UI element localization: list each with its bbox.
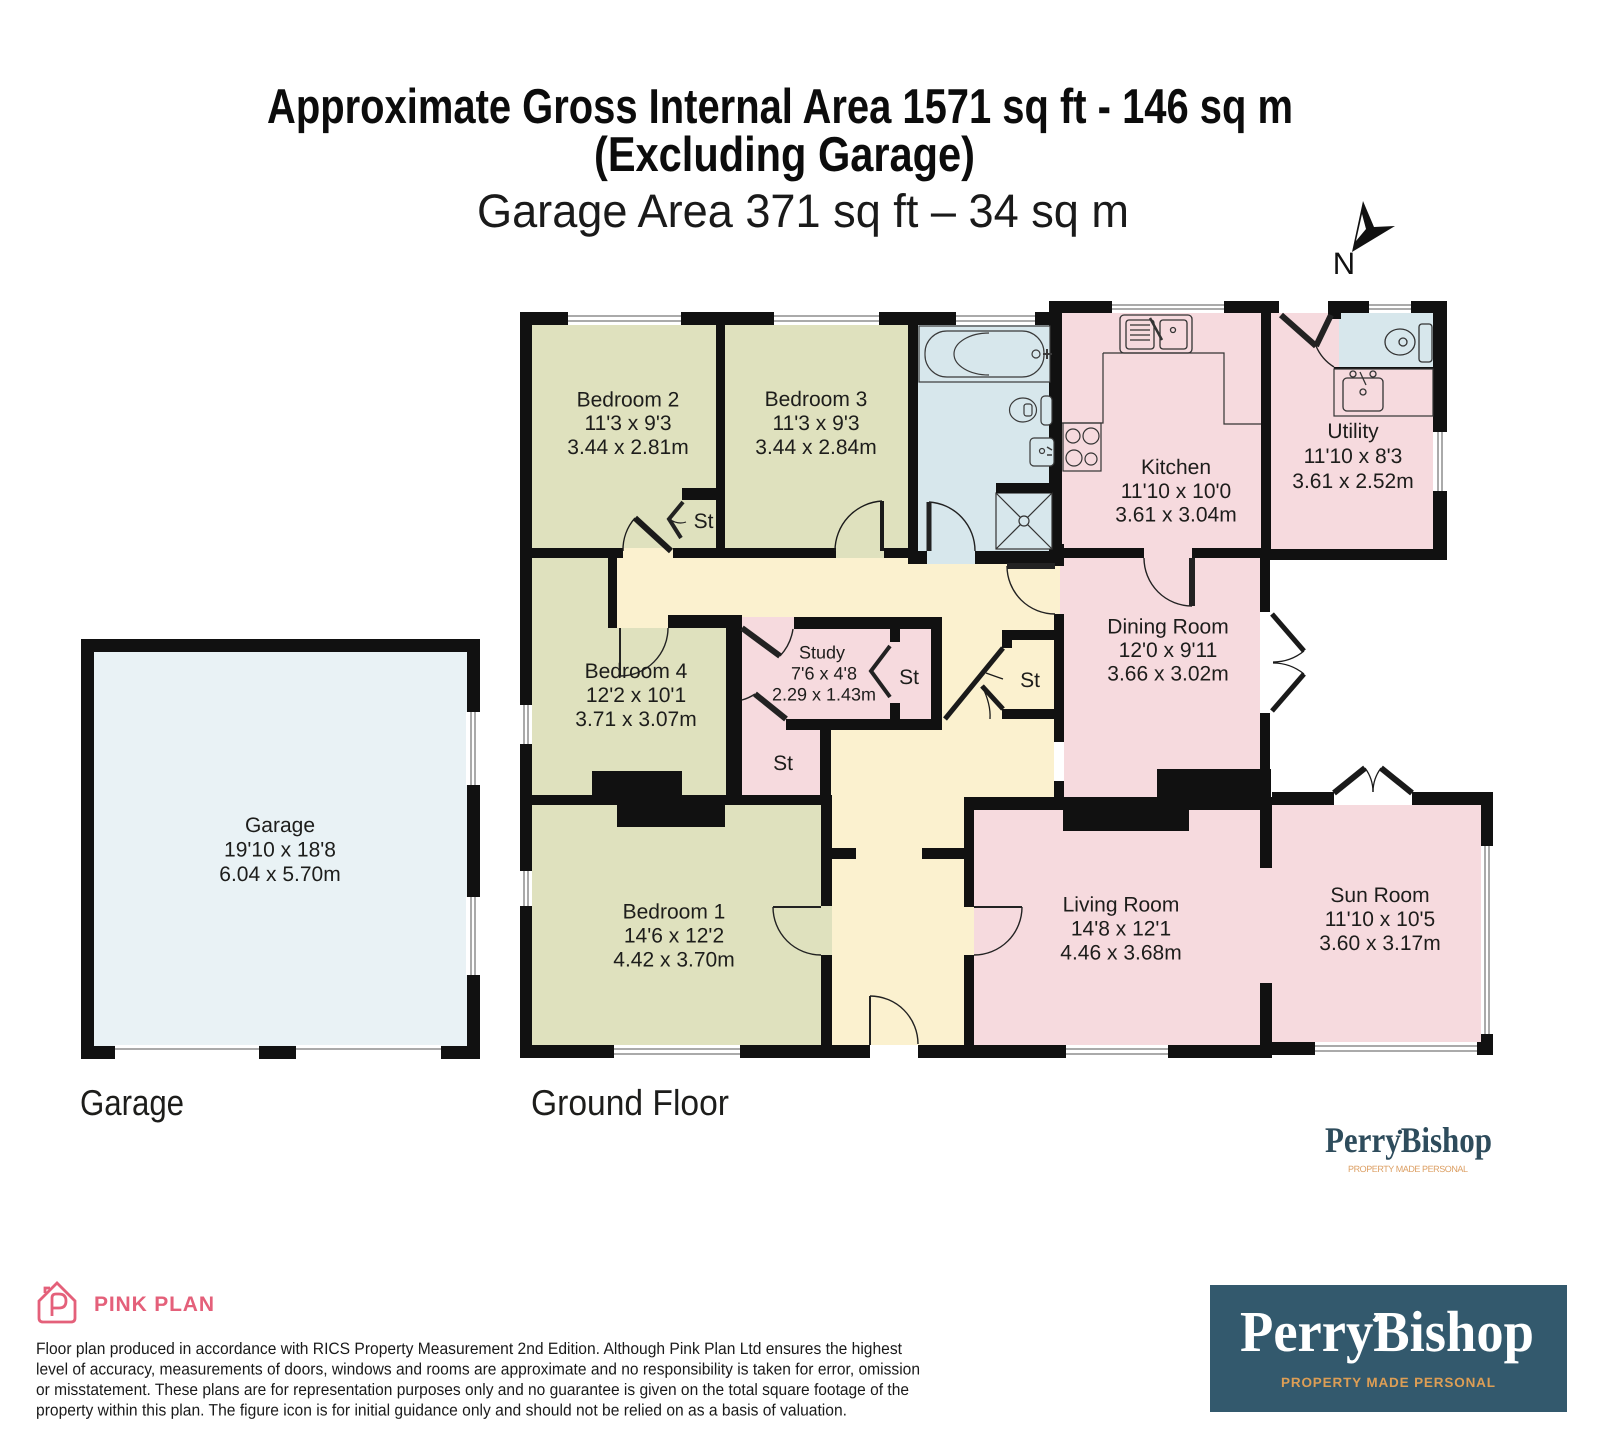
svg-text:Study: Study: [799, 643, 845, 663]
svg-text:12'0 x 9'11: 12'0 x 9'11: [1119, 639, 1218, 662]
svg-text:14'6 x 12'2: 14'6 x 12'2: [624, 925, 724, 948]
svg-text:Bedroom 1: Bedroom 1: [623, 901, 726, 924]
svg-text:Floor plan produced in accorda: Floor plan produced in accordance with R…: [36, 1340, 902, 1358]
svg-text:or misstatement. These plans a: or misstatement. These plans are for rep…: [36, 1381, 909, 1399]
svg-text:12'2 x 10'1: 12'2 x 10'1: [586, 684, 686, 707]
svg-text:Kitchen: Kitchen: [1141, 456, 1211, 479]
svg-text:11'10 x 10'5: 11'10 x 10'5: [1325, 908, 1435, 931]
svg-text:level of accuracy, measurement: level of accuracy, measurements of doors…: [36, 1361, 920, 1379]
svg-text:N: N: [1333, 246, 1355, 281]
svg-text:4.42 x 3.70m: 4.42 x 3.70m: [613, 949, 734, 972]
svg-text:St: St: [899, 666, 919, 689]
svg-text:St: St: [773, 752, 793, 775]
svg-text:Garage: Garage: [245, 814, 315, 837]
svg-text:3.44 x 2.81m: 3.44 x 2.81m: [567, 436, 688, 459]
svg-text:11'10 x 8'3: 11'10 x 8'3: [1304, 445, 1403, 468]
svg-text:4.46 x 3.68m: 4.46 x 3.68m: [1060, 942, 1181, 965]
svg-text:Garage: Garage: [80, 1082, 184, 1123]
svg-text:3.61 x 3.04m: 3.61 x 3.04m: [1115, 504, 1236, 527]
svg-text:PROPERTY MADE PERSONAL: PROPERTY MADE PERSONAL: [1348, 1164, 1468, 1174]
svg-text:14'8 x 12'1: 14'8 x 12'1: [1071, 918, 1171, 941]
svg-text:Ground Floor: Ground Floor: [531, 1082, 729, 1123]
svg-text:3.60 x 3.17m: 3.60 x 3.17m: [1319, 932, 1440, 955]
svg-text:Dining Room: Dining Room: [1107, 616, 1228, 639]
svg-text:Approximate Gross Internal Are: Approximate Gross Internal Area 1571 sq …: [267, 80, 1293, 134]
svg-text:Bedroom 3: Bedroom 3: [765, 388, 868, 411]
svg-text:3.44 x 2.84m: 3.44 x 2.84m: [755, 436, 876, 459]
svg-text:Bedroom 2: Bedroom 2: [577, 389, 680, 412]
svg-text:(Excluding Garage): (Excluding Garage): [594, 128, 975, 182]
svg-text:19'10 x 18'8: 19'10 x 18'8: [224, 839, 336, 862]
svg-text:PerryBishop: PerryBishop: [1240, 1299, 1534, 1364]
svg-text:St: St: [1020, 669, 1040, 692]
svg-text:Utility: Utility: [1327, 420, 1379, 443]
svg-text:PINK PLAN: PINK PLAN: [94, 1293, 214, 1316]
svg-text:11'3 x 9'3: 11'3 x 9'3: [772, 412, 859, 435]
svg-text:property within this plan. The: property within this plan. The figure ic…: [36, 1402, 847, 1420]
svg-text:Bedroom 4: Bedroom 4: [585, 660, 688, 683]
svg-text:11'10 x 10'0: 11'10 x 10'0: [1121, 480, 1231, 503]
svg-text:3.71 x 3.07m: 3.71 x 3.07m: [575, 708, 696, 731]
svg-text:Sun Room: Sun Room: [1330, 884, 1429, 907]
svg-text:Living Room: Living Room: [1063, 894, 1180, 917]
svg-text:7'6 x 4'8: 7'6 x 4'8: [791, 664, 857, 684]
svg-text:Garage Area 371 sq ft – 34 sq: Garage Area 371 sq ft – 34 sq m: [477, 184, 1129, 237]
svg-text:11'3 x 9'3: 11'3 x 9'3: [584, 412, 671, 435]
svg-text:3.61 x 2.52m: 3.61 x 2.52m: [1292, 470, 1413, 493]
svg-text:PROPERTY MADE PERSONAL: PROPERTY MADE PERSONAL: [1281, 1375, 1495, 1390]
svg-text:6.04 x 5.70m: 6.04 x 5.70m: [219, 863, 340, 886]
svg-text:3.66 x 3.02m: 3.66 x 3.02m: [1107, 663, 1228, 686]
svg-text:St: St: [694, 510, 714, 533]
svg-text:2.29 x 1.43m: 2.29 x 1.43m: [772, 685, 876, 705]
svg-text:PerryBishop: PerryBishop: [1325, 1120, 1492, 1160]
